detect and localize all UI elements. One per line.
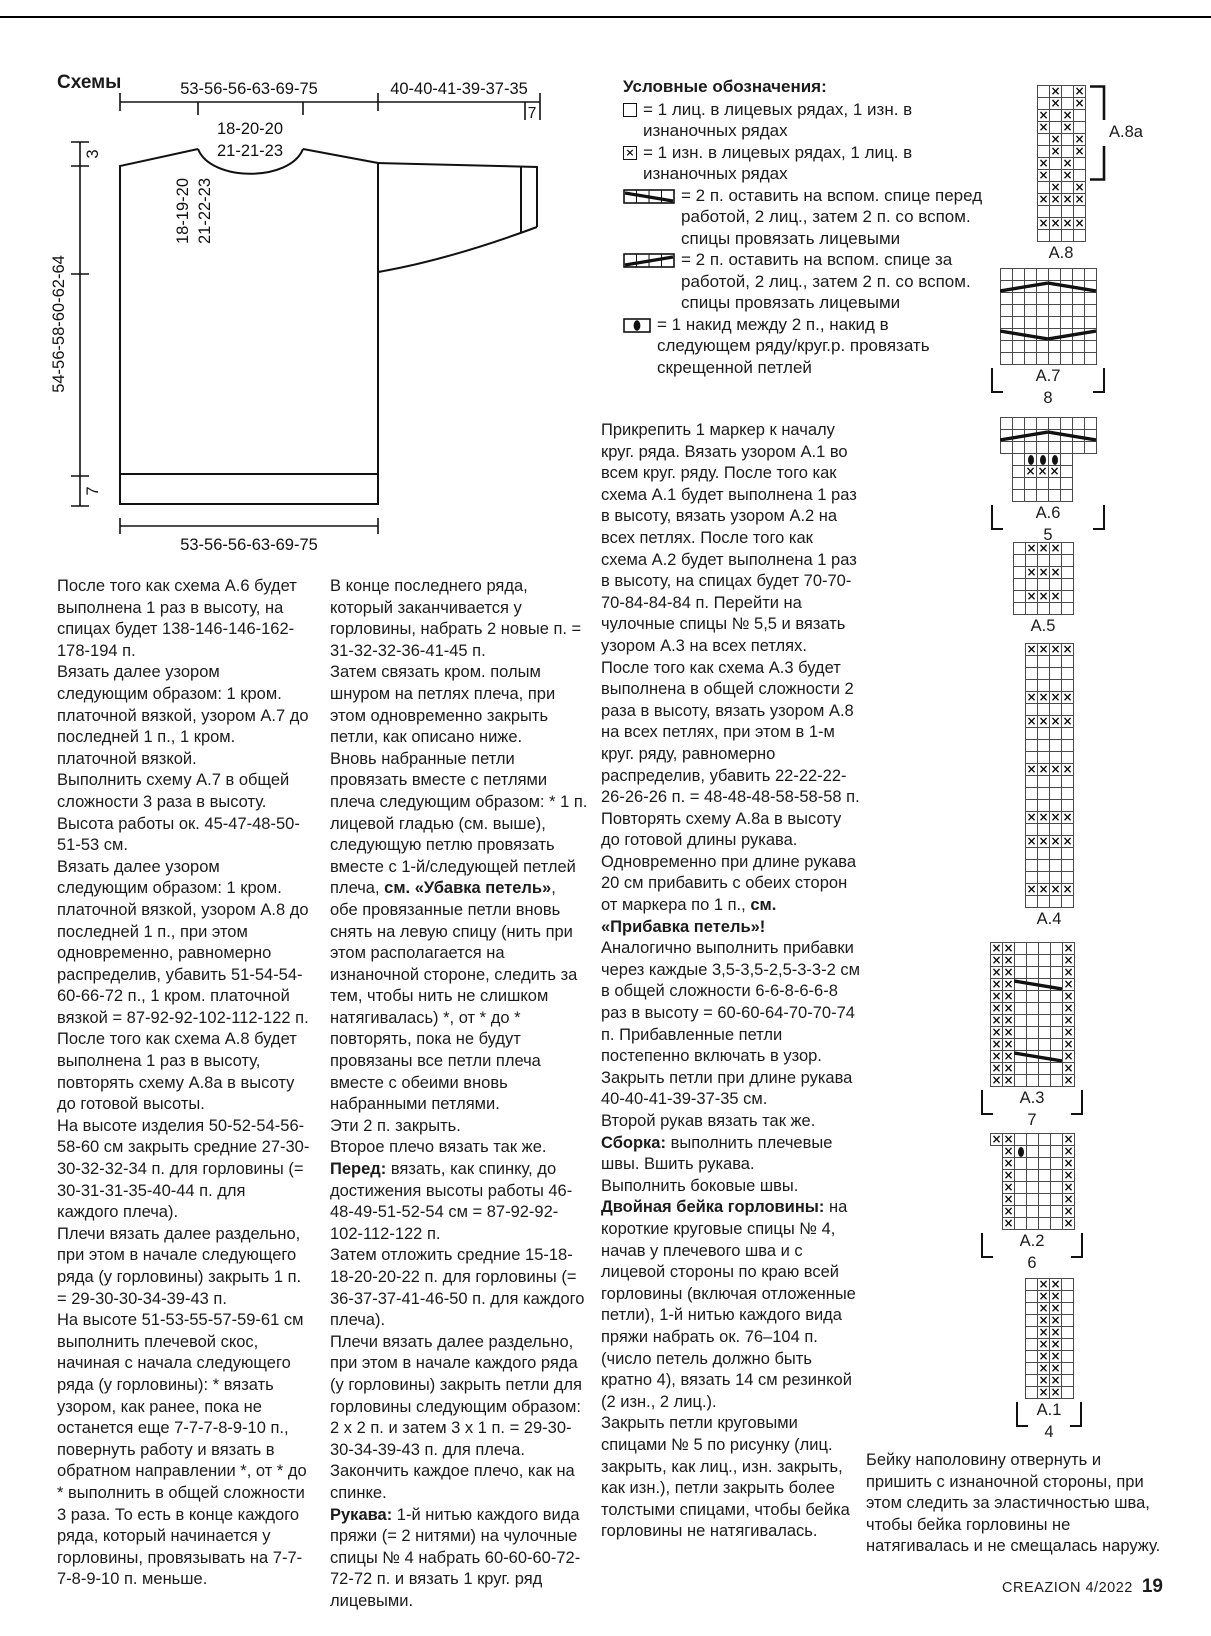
instruction-text: Затем отложить средние 15-18-18-20-20-22… xyxy=(330,1246,585,1329)
chart-a4: ××××××××××××××××××××××××××××A.4 xyxy=(1025,643,1082,929)
instructions-column-middle: В конце последнего ряда, который заканчи… xyxy=(330,576,588,1613)
yarn-over-icon xyxy=(623,318,651,333)
chart-a1: ××××××××××××××××××××A.14 xyxy=(1025,1278,1082,1442)
instruction-text: Выполнить схему А.7 в общей сложности 3 … xyxy=(57,771,300,854)
chart-grid: ×××××××××××××××××××× xyxy=(1025,1278,1073,1398)
legend-item: = 2 п. оставить на вспом. спице перед ра… xyxy=(623,185,985,250)
instructions-column-right: Прикрепить 1 маркер к началу круг. ряда.… xyxy=(601,420,861,1543)
instruction-text: Затем связать кром. полым шнуром на петл… xyxy=(330,663,555,746)
legend-item-text: = 2 п. оставить на вспом. спице за работ… xyxy=(681,249,985,314)
knit-stitch-icon xyxy=(623,103,637,117)
instruction-paragraph: Двойная бейка горловины: на короткие кру… xyxy=(601,1197,861,1413)
measure-cuff: 7 xyxy=(528,105,537,122)
chart-label-area: A.37 xyxy=(981,1089,1083,1130)
instruction-paragraph: Затем отложить средние 15-18-18-20-20-22… xyxy=(330,1245,588,1331)
knit-cell xyxy=(1061,1386,1074,1399)
instruction-text: Закрыть петли при длине рукава 40-40-41-… xyxy=(601,1069,852,1109)
instruction-paragraph: Вновь набранные петли провязать вместе с… xyxy=(330,749,588,1116)
instruction-text: Прикрепить 1 маркер к началу круг. ряда.… xyxy=(601,421,857,655)
measure-neck-2: 21-21-23 xyxy=(217,142,283,160)
instruction-text: Вязать далее узором следующим образом: 1… xyxy=(57,858,309,1027)
instruction-text: После того как схема А.3 будет выполнена… xyxy=(601,659,860,807)
instruction-paragraph: На высоте 51-53-55-57-59-61 см выполнить… xyxy=(57,1310,311,1591)
instruction-text: На высоте изделия 50-52-54-56-58-60 см з… xyxy=(57,1117,309,1221)
chart-label-area: A.5 xyxy=(1004,617,1082,636)
measure-shoulder-drop: 3 xyxy=(84,149,102,158)
legend: Условные обозначения: = 1 лиц. в лицевых… xyxy=(623,76,985,378)
instruction-paragraph: Повторять схему А.8а в высоту до готовой… xyxy=(601,809,861,852)
chart-stitch-count: 7 xyxy=(981,1111,1083,1130)
instruction-text: Второе плечо вязать так же. xyxy=(330,1138,546,1156)
chart-a8: ××××××××××××××××××××××××××A.8aA.8 xyxy=(1037,85,1094,263)
instruction-text: Закончить каждое плечо, как на спинке. xyxy=(330,1462,575,1502)
chart-label-area: A.4 xyxy=(1016,910,1082,929)
chart-a2: ×××××××××××××××××A.26 xyxy=(990,1133,1083,1273)
chart-grid: ××××××××× xyxy=(1013,542,1073,614)
instruction-text: Повторять схему А.8а в высоту до готовой… xyxy=(601,810,841,850)
instruction-paragraph: После того как схема А.3 будет выполнена… xyxy=(601,658,861,809)
instruction-paragraph: После того как схема А.8 будет выполнена… xyxy=(57,1029,311,1115)
instruction-paragraph: Затем связать кром. полым шнуром на петл… xyxy=(330,662,588,748)
instruction-paragraph: На высоте изделия 50-52-54-56-58-60 см з… xyxy=(57,1116,311,1224)
chart-grid xyxy=(1000,268,1096,364)
measure-top-width: 53-56-56-63-69-75 xyxy=(180,80,318,98)
measure-yoke-2: 21-22-23 xyxy=(196,178,214,244)
instruction-text: Плечи вязать далее раздельно, при этом в… xyxy=(57,1225,301,1308)
knit-cell xyxy=(1073,229,1086,242)
instruction-paragraph: После того как схема А.6 будет выполнена… xyxy=(57,576,311,662)
legend-item: = 1 накид между 2 п., накид в следующем … xyxy=(623,314,985,379)
instruction-text: , обе провязанные петли вновь снять на л… xyxy=(330,879,577,1113)
knit-cell xyxy=(1084,352,1097,365)
purl-stitch-icon: × xyxy=(623,146,637,160)
legend-item: = 1 лиц. в лицевых рядах, 1 изн. в изнан… xyxy=(623,99,985,142)
chart-grid: ××× xyxy=(1000,417,1096,501)
chart-label: A.1 xyxy=(1016,1401,1082,1420)
chart-stitch-count: 8 xyxy=(991,389,1105,408)
chart-label-area: A.78 xyxy=(991,367,1105,408)
instruction-text: Эти 2 п. закрыть. xyxy=(330,1117,461,1135)
instruction-bold-text: Двойная бейка горловины: xyxy=(601,1198,824,1216)
instruction-paragraph: Вязать далее узором следующим образом: 1… xyxy=(57,857,311,1030)
instructions-column-left: После того как схема А.6 будет выполнена… xyxy=(57,576,311,1591)
measure-sleeve-length: 40-40-41-39-37-35 xyxy=(390,80,528,98)
legend-item: × = 1 изн. в лицевых рядах, 1 лиц. в изн… xyxy=(623,142,985,185)
cable-back-icon xyxy=(623,253,675,268)
instruction-paragraph: Рукава: 1-й нитью каждого вида пряжи (= … xyxy=(330,1505,588,1613)
instruction-text: Плечи вязать далее раздельно, при этом в… xyxy=(330,1333,582,1459)
instruction-paragraph: Одновременно при длине рукава 20 см приб… xyxy=(601,852,861,938)
instruction-text: В конце последнего ряда, который заканчи… xyxy=(330,577,581,660)
instruction-paragraph: В конце последнего ряда, который заканчи… xyxy=(330,576,588,662)
left-measure-line xyxy=(71,142,89,506)
legend-item: = 2 п. оставить на вспом. спице за работ… xyxy=(623,249,985,314)
instruction-paragraph: Выполнить боковые швы. xyxy=(601,1176,861,1198)
chart-repeat-label: A.8a xyxy=(1109,123,1143,142)
chart-label: A.3 xyxy=(981,1089,1083,1108)
instruction-paragraph: Выполнить схему А.7 в общей сложности 3 … xyxy=(57,770,311,856)
instruction-paragraph: Прикрепить 1 маркер к началу круг. ряда.… xyxy=(601,420,861,658)
instruction-paragraph: Сборка: выполнить плечевые швы. Вшить ру… xyxy=(601,1133,861,1176)
chart-label: A.6 xyxy=(991,504,1105,523)
instruction-text: Вязать далее узором следующим образом: 1… xyxy=(57,663,309,767)
chart-grid: ××××××××××××××××××××××××××A.8a xyxy=(1037,85,1085,241)
legend-item-text: = 1 изн. в лицевых рядах, 1 лиц. в изнан… xyxy=(643,142,985,185)
legend-item-text: = 2 п. оставить на вспом. спице перед ра… xyxy=(681,185,985,250)
chart-label-area: A.14 xyxy=(1016,1401,1082,1442)
page-number: 19 xyxy=(1142,1576,1163,1597)
bottom-measure-line xyxy=(120,518,378,534)
knit-cell xyxy=(1061,895,1074,908)
instruction-text: Второй рукав вязать так же. xyxy=(601,1112,815,1130)
measure-side-height: 54-56-58-60-62-64 xyxy=(50,255,68,393)
chart-grid: ××××××××××××××××× xyxy=(990,1133,1074,1229)
instruction-paragraph: Аналогично выполнить прибавки через кажд… xyxy=(601,938,861,1068)
instruction-paragraph: Вязать далее узором следующим образом: 1… xyxy=(57,662,311,770)
page-top-rule xyxy=(0,16,1211,18)
chart-label: A.4 xyxy=(1016,910,1082,929)
instruction-bold-text: см. «Убавка петель» xyxy=(384,879,551,897)
instruction-text: На высоте 51-53-55-57-59-61 см выполнить… xyxy=(57,1311,307,1588)
sweater-schematic: 53-56-56-63-69-75 40-40-41-39-37-35 7 18… xyxy=(48,74,588,556)
instruction-bold-text: Сборка: xyxy=(601,1134,666,1152)
closing-note: Бейку наполовину отвернуть и пришить с и… xyxy=(866,1450,1170,1558)
instruction-paragraph: Второе плечо вязать так же. xyxy=(330,1137,588,1159)
chart-label-area: A.8 xyxy=(1028,244,1094,263)
chart-label-area: A.65 xyxy=(991,504,1105,545)
purl-cell: × xyxy=(1062,1074,1075,1087)
instruction-bold-text: Перед: xyxy=(330,1160,386,1178)
instruction-paragraph: Плечи вязать далее раздельно, при этом в… xyxy=(57,1224,311,1310)
knit-cell xyxy=(1061,602,1074,615)
chart-a7: A.78 xyxy=(1000,268,1105,408)
measure-rib-height: 7 xyxy=(84,486,102,495)
chart-grid: ×××××××××××××××××××××××××××××××××××× xyxy=(990,942,1074,1086)
cable-front-icon xyxy=(623,189,675,204)
page-footer: CREAZION 4/202219 xyxy=(900,1576,1163,1598)
instruction-paragraph: Перед: вязать, как спинку, до достижения… xyxy=(330,1159,588,1245)
instruction-text: Вновь набранные петли провязать вместе с… xyxy=(330,750,587,898)
measure-neck-1: 18-20-20 xyxy=(217,120,283,138)
knit-cell xyxy=(1084,441,1097,454)
chart-grid: ×××××××××××××××××××××××××××× xyxy=(1025,643,1073,907)
instruction-text: на короткие круговые спицы № 4, начав у … xyxy=(601,1198,856,1410)
legend-title: Условные обозначения: xyxy=(623,76,985,98)
chart-stitch-count: 6 xyxy=(981,1254,1083,1273)
knit-cell xyxy=(1060,489,1073,502)
chart-a3: ××××××××××××××××××××××××××××××××××××A.37 xyxy=(990,942,1083,1130)
instruction-paragraph: Второй рукав вязать так же. xyxy=(601,1111,861,1133)
instruction-text: Выполнить боковые швы. xyxy=(601,1177,798,1195)
measure-yoke-1: 18-19-20 xyxy=(174,178,192,244)
chart-label-area: A.26 xyxy=(981,1232,1083,1273)
chart-label: A.2 xyxy=(981,1232,1083,1251)
instruction-text: Одновременно при длине рукава 20 см приб… xyxy=(601,853,856,914)
chart-a5: ×××××××××A.5 xyxy=(1013,542,1082,636)
chart-label: A.7 xyxy=(991,367,1105,386)
measure-bottom-width: 53-56-56-63-69-75 xyxy=(180,536,318,554)
chart-label: A.5 xyxy=(1004,617,1082,636)
instruction-paragraph: Эти 2 п. закрыть. xyxy=(330,1116,588,1138)
chart-label: A.8 xyxy=(1028,244,1094,263)
instruction-paragraph: Закрыть петли круговыми спицами № 5 по р… xyxy=(601,1413,861,1543)
chart-a6: ×××A.65 xyxy=(1000,417,1105,545)
chart-repeat-bracket: A.8a xyxy=(1090,85,1154,181)
legend-item-text: = 1 накид между 2 п., накид в следующем … xyxy=(657,314,985,379)
instruction-text: После того как схема А.8 будет выполнена… xyxy=(57,1030,297,1113)
instruction-bold-text: Рукава: xyxy=(330,1506,392,1524)
instruction-text: После того как схема А.6 будет выполнена… xyxy=(57,577,297,660)
magazine-title: CREAZION 4/2022 xyxy=(1002,1580,1133,1596)
instruction-paragraph: Плечи вязать далее раздельно, при этом в… xyxy=(330,1332,588,1462)
instruction-paragraph: Закрыть петли при длине рукава 40-40-41-… xyxy=(601,1068,861,1111)
legend-item-text: = 1 лиц. в лицевых рядах, 1 изн. в изнан… xyxy=(643,99,985,142)
magazine-page: Схемы 53-56-56-63-69-75 40-40-41-39-37-3… xyxy=(0,0,1211,1636)
instruction-text: Закрыть петли круговыми спицами № 5 по р… xyxy=(601,1414,850,1540)
instruction-text: Аналогично выполнить прибавки через кажд… xyxy=(601,939,860,1065)
purl-cell: × xyxy=(1062,1217,1075,1230)
instruction-paragraph: Закончить каждое плечо, как на спинке. xyxy=(330,1461,588,1504)
